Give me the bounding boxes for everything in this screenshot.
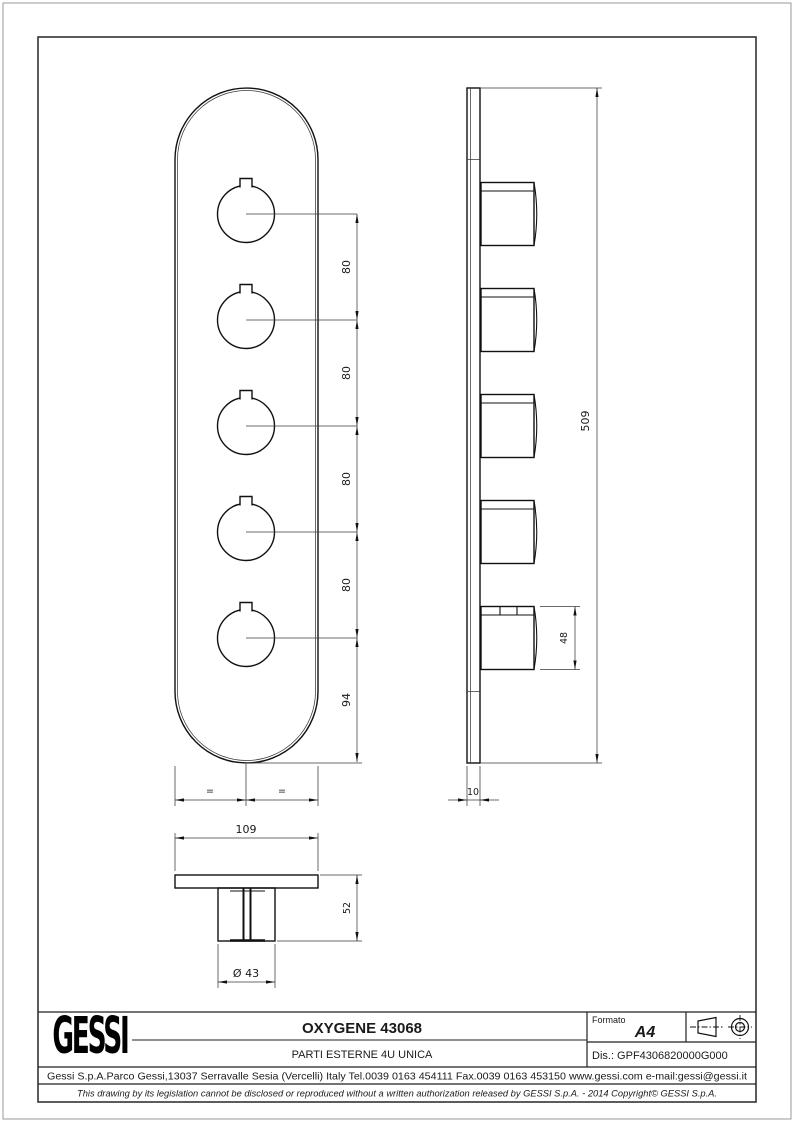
first-angle-projection-icon	[690, 1015, 752, 1039]
dim-plate-thickness: 10	[448, 766, 499, 806]
drawing-number: Dis.: GPF4306820000G000	[592, 1050, 728, 1062]
drawing-title: OXYGENE 43068	[302, 1020, 422, 1037]
formato-value: A4	[634, 1024, 656, 1041]
legal-notice: This drawing by its legislation cannot b…	[77, 1089, 717, 1100]
dim-pitch-3: 80	[340, 472, 353, 486]
gessi-logo: GESSI	[52, 1008, 128, 1066]
front-knob-1	[218, 178, 358, 243]
dim-equal-split: = =	[175, 764, 318, 806]
side-knob-1	[481, 183, 537, 246]
dim-plate-width: 109	[175, 823, 318, 871]
drawing-sheet: 80 80 80 80 94 = =	[0, 0, 794, 1123]
dim-overall-depth: 52	[277, 875, 362, 941]
dim-overall-depth-label: 52	[342, 902, 353, 914]
company-address: Gessi S.p.A.Parco Gessi,13037 Serravalle…	[47, 1071, 747, 1083]
dim-knob-pitch: 80 80 80 80 94	[246, 214, 362, 763]
front-knob-5	[218, 602, 358, 667]
dim-knob-side-height-label: 48	[559, 632, 570, 644]
dim-knob-diameter: Ø 43	[218, 944, 275, 988]
formato-label: Formato	[592, 1015, 626, 1025]
dim-plate-thickness-label: 10	[467, 787, 479, 798]
dim-overall-height: 509	[480, 88, 602, 763]
dim-equal-left: =	[206, 786, 214, 797]
dim-knob-side-height: 48	[540, 607, 580, 670]
side-knob-3	[481, 395, 537, 458]
dim-pitch-4: 80	[340, 578, 353, 592]
front-knob-2	[218, 284, 358, 349]
page-borders	[3, 3, 791, 1119]
side-view	[467, 88, 537, 763]
front-knob-4	[218, 496, 358, 561]
front-view	[175, 88, 357, 763]
title-block: GESSI OXYGENE 43068 PARTI ESTERNE 4U UNI…	[38, 1008, 756, 1100]
dim-overall-height-label: 509	[579, 411, 592, 432]
side-knob-4	[481, 501, 537, 564]
side-knob-2	[481, 289, 537, 352]
dim-pitch-2: 80	[340, 366, 353, 380]
dim-equal-right: =	[278, 786, 286, 797]
side-knob-5	[481, 607, 537, 670]
front-knob-3	[218, 390, 358, 455]
dim-knob-diameter-label: Ø 43	[233, 967, 259, 980]
dim-pitch-1: 80	[340, 260, 353, 274]
dim-bottom-offset: 94	[340, 693, 353, 707]
dim-plate-width-label: 109	[236, 823, 257, 836]
bottom-view	[175, 875, 318, 941]
drawing-subtitle: PARTI ESTERNE 4U UNICA	[292, 1049, 433, 1061]
